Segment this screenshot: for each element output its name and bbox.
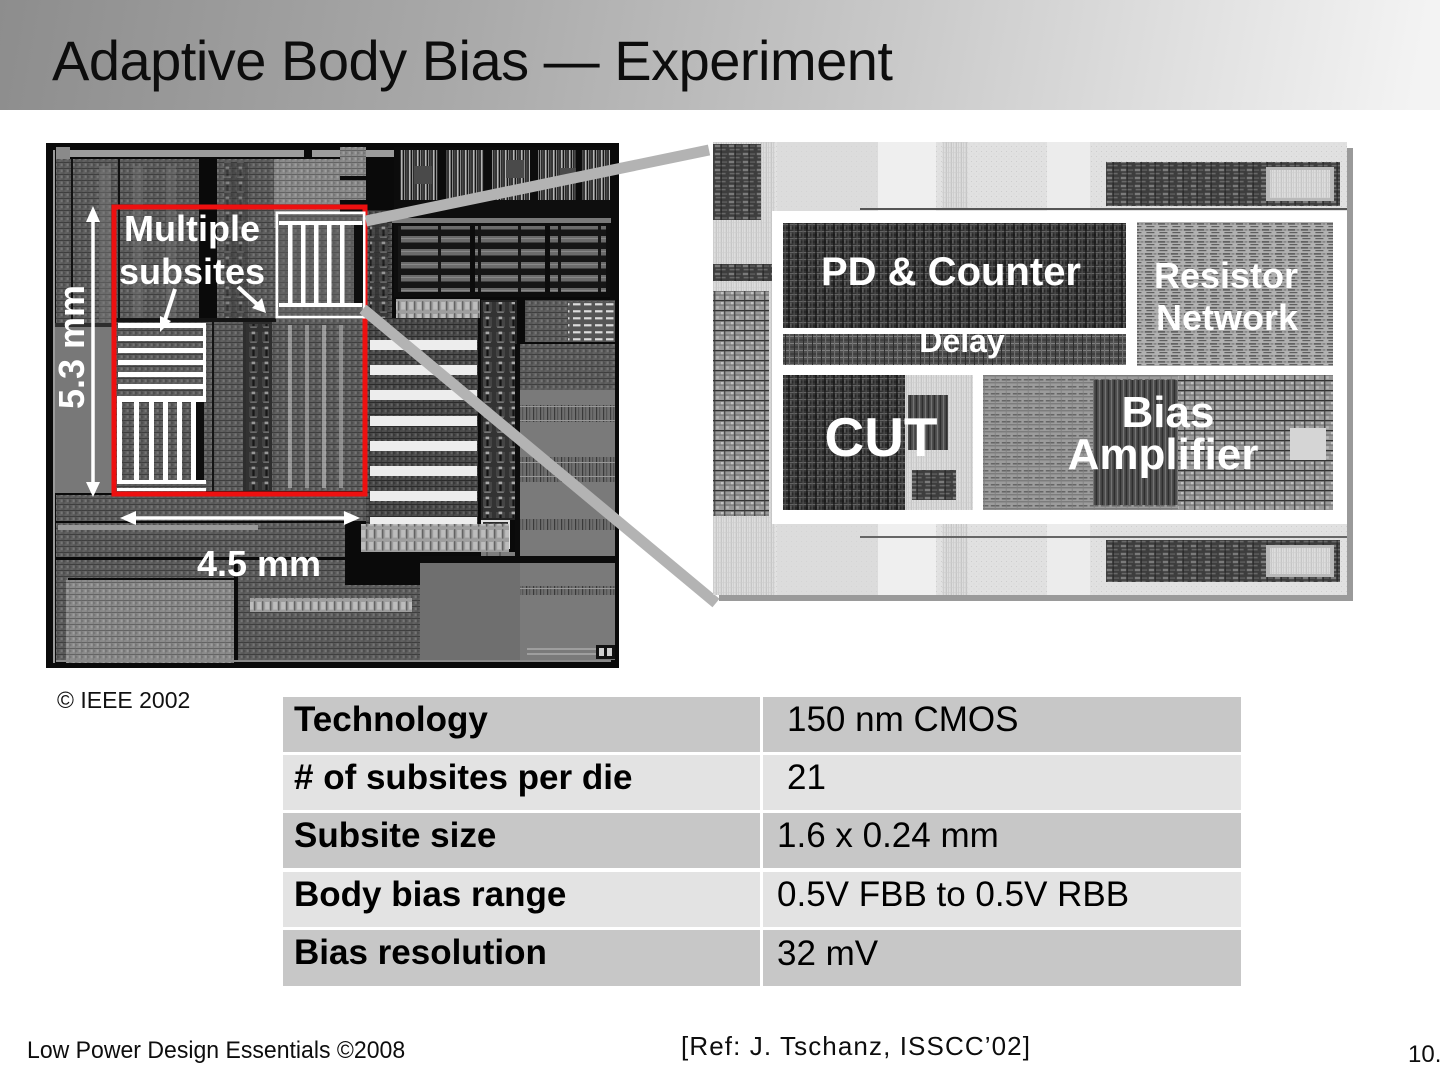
svg-text:CUT: CUT bbox=[824, 406, 937, 468]
svg-text:4.5 mm: 4.5 mm bbox=[197, 543, 321, 584]
svg-text:PD & Counter: PD & Counter bbox=[821, 250, 1081, 294]
svg-text:5.3 mm: 5.3 mm bbox=[51, 285, 92, 409]
svg-text:Amplifier: Amplifier bbox=[1068, 430, 1259, 479]
svg-text:Network: Network bbox=[1156, 297, 1299, 338]
svg-text:Delay: Delay bbox=[919, 323, 1005, 359]
svg-text:Resistor: Resistor bbox=[1154, 255, 1298, 296]
svg-text:subsites: subsites bbox=[119, 251, 265, 292]
svg-text:Multiple: Multiple bbox=[124, 208, 260, 249]
